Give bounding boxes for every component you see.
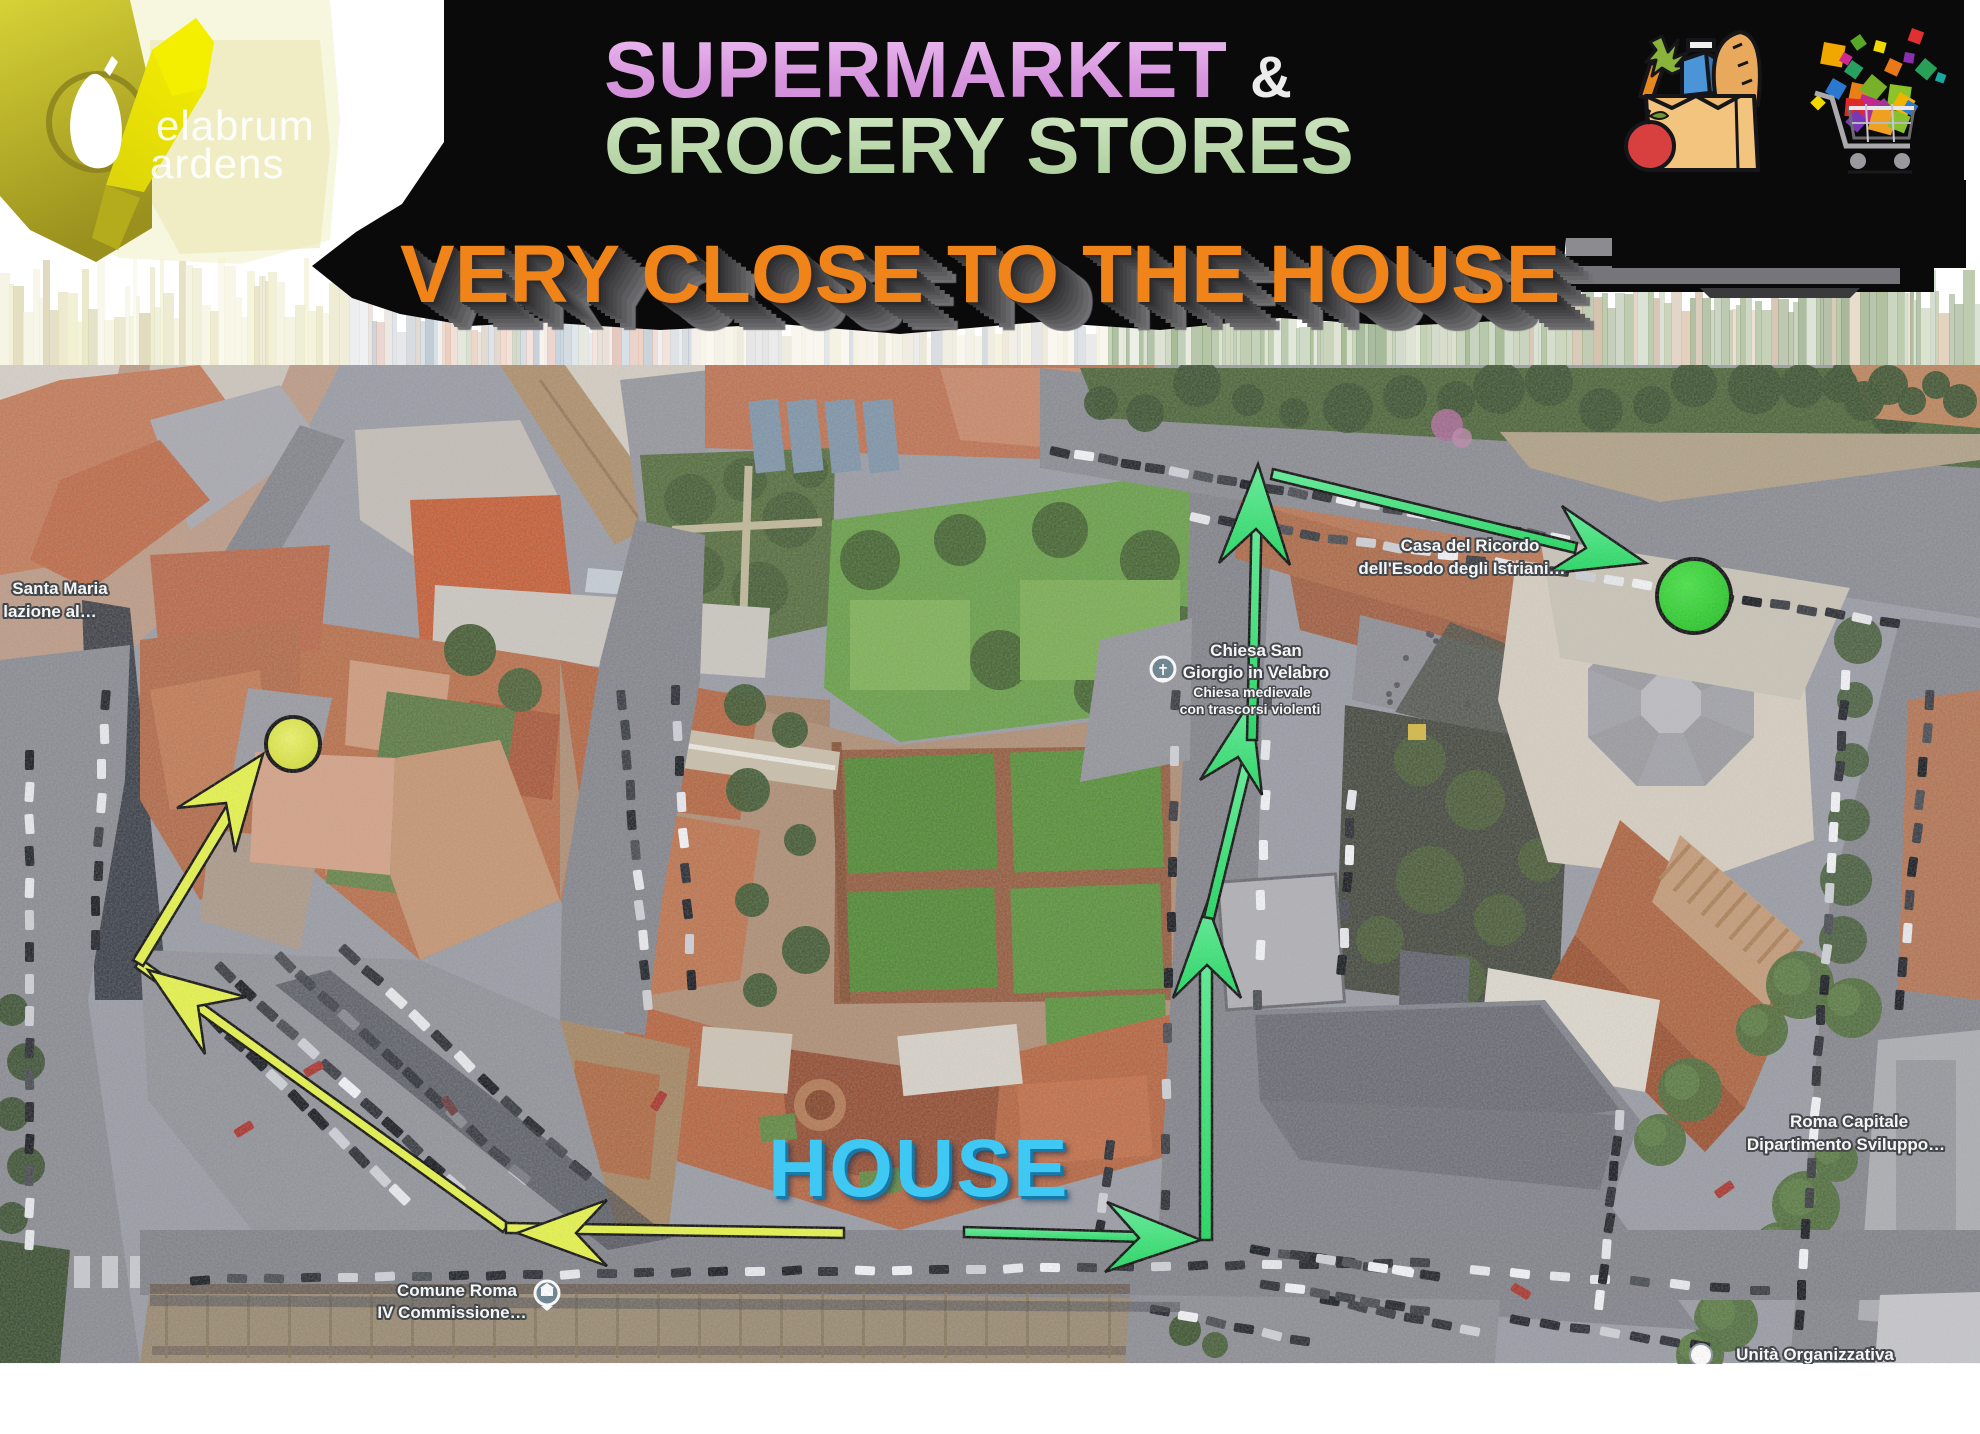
svg-text:ardens: ardens [150, 140, 284, 187]
